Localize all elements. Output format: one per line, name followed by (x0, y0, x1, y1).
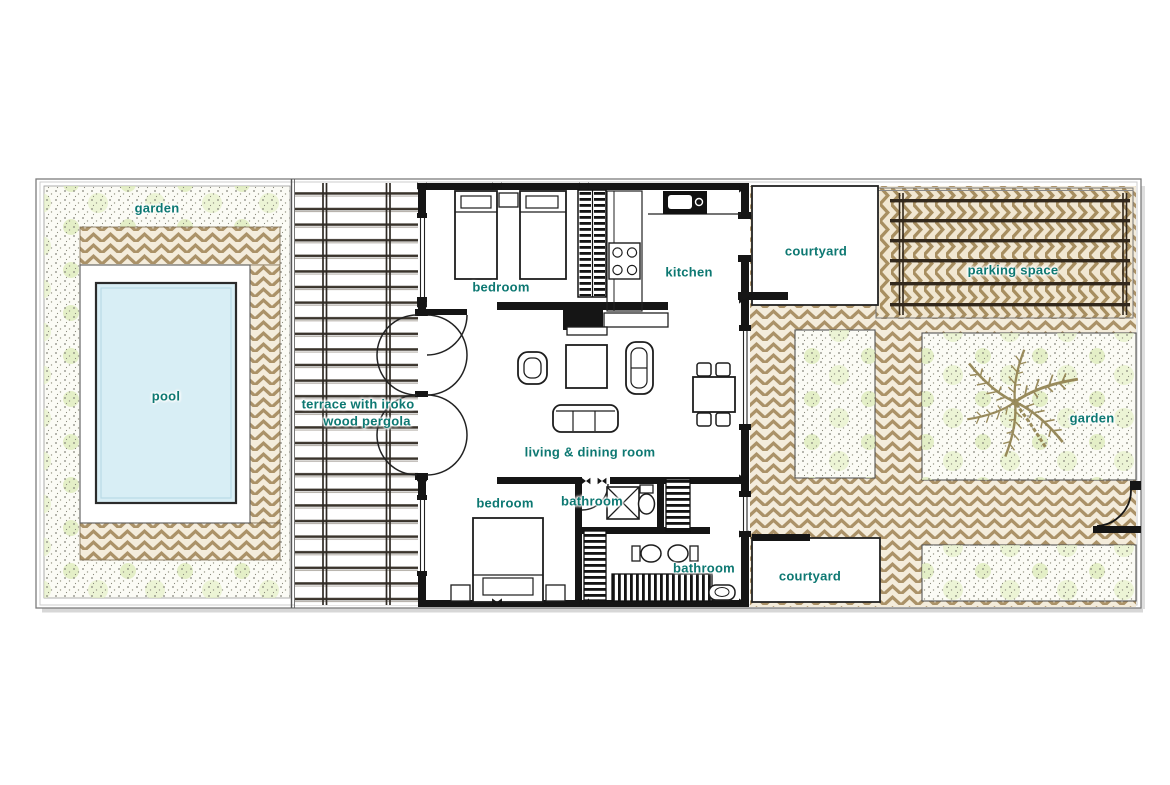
stairs-horizontal (612, 574, 712, 601)
garden-strip-bottom (922, 545, 1136, 601)
coffee-table (566, 345, 607, 388)
bathroom-main-label: bathroom (561, 494, 623, 509)
garden-right-area (922, 333, 1136, 480)
pool-label: pool (152, 389, 180, 404)
kitchen-peninsula (604, 313, 668, 327)
stairs-bottom (584, 531, 606, 600)
garden-strip-vertical (795, 330, 875, 478)
closet-striped (666, 479, 690, 531)
dining-table (693, 377, 735, 412)
toilet-tank (640, 485, 653, 493)
stairs-top (578, 190, 606, 297)
floor-plan: garden pool terrace with iroko wood perg… (0, 0, 1170, 785)
courtyard-bottom-label: courtyard (779, 569, 841, 584)
toilet (639, 494, 655, 514)
drop-shadow-bottom (42, 608, 1143, 613)
courtyard-top-label: courtyard (785, 244, 847, 259)
parking-space-label: parking space (968, 263, 1059, 278)
terrace-label-line2: wood pergola (323, 414, 411, 429)
living-dining-label: living & dining room (525, 445, 656, 460)
sideboard (567, 327, 607, 335)
pergola-terrace (295, 183, 418, 605)
garden-right-label: garden (1070, 411, 1115, 426)
bedroom-bottom-label: bedroom (476, 496, 533, 511)
terrace-label-line1: terrace with iroko (302, 397, 415, 412)
bedroom-top-label: bedroom (472, 280, 529, 295)
parking-area (876, 188, 1133, 318)
sofa (553, 405, 618, 432)
bathroom-guest-label: bathroom (673, 561, 735, 576)
kitchen-label: kitchen (665, 265, 712, 280)
garden-left-label: garden (135, 201, 180, 216)
